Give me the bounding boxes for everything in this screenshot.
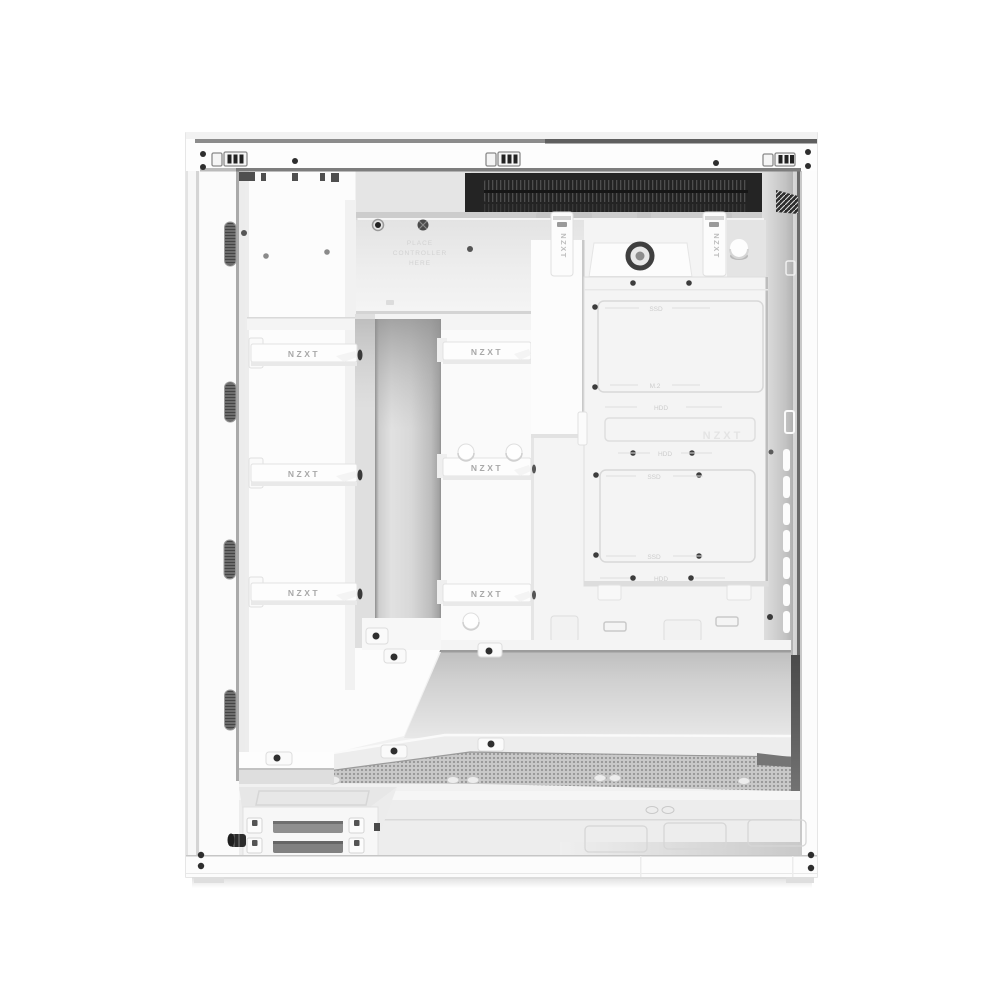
svg-text:NZXT: NZXT — [471, 347, 503, 357]
svg-text:SSD: SSD — [647, 554, 661, 561]
svg-text:NZXT: NZXT — [288, 349, 320, 359]
svg-text:SSD: SSD — [647, 474, 661, 481]
svg-text:NZXT: NZXT — [471, 463, 503, 473]
svg-text:HERE: HERE — [409, 260, 431, 267]
svg-text:M.2: M.2 — [650, 383, 661, 390]
svg-text:NZXT: NZXT — [288, 588, 320, 598]
svg-text:NZXT: NZXT — [288, 469, 320, 479]
svg-text:HDD: HDD — [654, 576, 668, 583]
svg-text:CONTROLLER: CONTROLLER — [393, 250, 447, 257]
svg-text:NZXT: NZXT — [471, 589, 503, 599]
svg-text:HDD: HDD — [654, 405, 668, 412]
svg-text:PLACE: PLACE — [407, 240, 433, 247]
svg-text:HDD: HDD — [658, 451, 672, 458]
svg-text:NZXT: NZXT — [559, 233, 568, 259]
svg-text:NZXT: NZXT — [712, 233, 721, 259]
svg-text:SSD: SSD — [649, 306, 663, 313]
svg-text:NZXT: NZXT — [703, 430, 744, 442]
